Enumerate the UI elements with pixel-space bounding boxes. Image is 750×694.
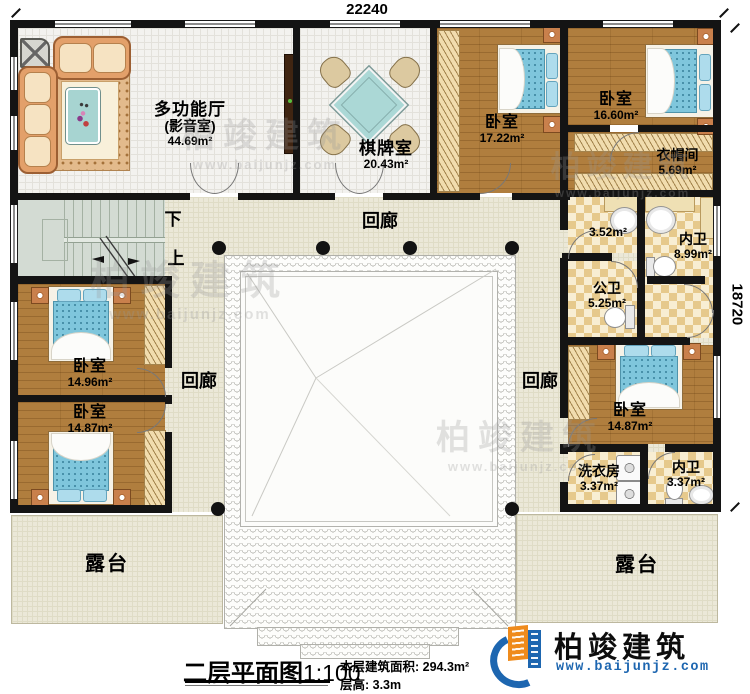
wall: [10, 276, 172, 284]
window: [10, 302, 18, 360]
coffee-table: [66, 88, 100, 144]
nightstand: [543, 26, 561, 43]
bed-pillow: [699, 54, 711, 81]
room-area: 5.69m²: [630, 164, 725, 177]
sofa-left: [18, 66, 58, 174]
floor-area-note: 本层建筑面积: 294.3m²: [340, 656, 469, 675]
bed: [615, 342, 683, 410]
wardrobe: [438, 30, 460, 192]
room-name: 洗衣房: [564, 464, 634, 480]
window: [185, 20, 255, 28]
stair-landing: [42, 219, 68, 261]
room-label-laundry: 洗衣房 3.37m²: [564, 464, 634, 493]
nightstand: [597, 343, 615, 360]
bed-pillow: [83, 489, 107, 502]
window: [10, 205, 18, 263]
logo-building-windows: [531, 633, 538, 665]
wall: [165, 276, 172, 368]
wall: [560, 200, 568, 230]
column: [316, 241, 330, 255]
wall: [10, 20, 18, 513]
bed-pillow: [546, 53, 558, 79]
room-name: 卧室: [452, 114, 552, 132]
room-area: 3.37m²: [564, 480, 634, 493]
wall: [15, 193, 190, 200]
dimension-tick: [11, 8, 21, 18]
window: [10, 57, 18, 90]
toilet-bowl: [604, 307, 626, 328]
column: [403, 241, 417, 255]
window: [440, 20, 530, 28]
stairs-up-label: 上: [165, 249, 187, 268]
bed-sheet: [499, 48, 525, 110]
sofa-cushion: [24, 136, 51, 167]
window: [713, 356, 721, 418]
floor-plan: 多功能厅 (影音室) 44.69m² 棋牌室 20.43m² 卧室 17.22m…: [0, 0, 750, 694]
bed: [497, 44, 561, 114]
stair-rail: [64, 237, 165, 243]
wall: [165, 432, 172, 513]
room-name: 内卫: [664, 232, 722, 248]
bed-pillow: [651, 345, 676, 357]
courtyard-opening: [240, 271, 498, 527]
room-area: 44.69m²: [140, 135, 240, 148]
wall: [665, 444, 721, 452]
wall: [568, 125, 610, 132]
bed-pillow: [57, 489, 81, 502]
corridor-label-right: 回廊: [514, 371, 566, 391]
window: [603, 20, 673, 28]
wardrobe: [144, 285, 166, 365]
room-label-bedroom-right: 卧室 14.87m²: [580, 402, 680, 433]
sofa-cushion: [24, 104, 51, 135]
nightstand: [31, 489, 49, 506]
tv-indicator: [288, 99, 292, 103]
bed-pillow: [699, 84, 711, 111]
column: [212, 241, 226, 255]
wall: [293, 20, 300, 200]
company-logo: 柏竣建筑 www.baijunjz.com: [488, 618, 738, 684]
room-name: 卧室: [40, 358, 140, 376]
room-name: 棋牌室: [336, 139, 436, 158]
wall: [647, 276, 705, 284]
room-area: 5.25m²: [577, 297, 637, 310]
wall: [637, 197, 645, 338]
title-underline: [185, 680, 330, 683]
room-subname: (影音室): [140, 119, 240, 135]
bed: [48, 286, 114, 362]
dimension-tick: [719, 8, 729, 18]
column: [505, 241, 519, 255]
room-area: 20.43m²: [336, 158, 436, 171]
stairs-down-label: 下: [162, 210, 184, 229]
bed-pillow: [546, 81, 558, 107]
dimension-right: 18720: [728, 272, 745, 336]
nightstand: [31, 287, 49, 304]
wall: [430, 20, 437, 200]
wall: [713, 20, 721, 512]
corridor-label-top: 回廊: [352, 211, 408, 231]
nightstand: [683, 343, 701, 360]
column: [505, 502, 519, 516]
nightstand: [113, 489, 131, 506]
room-area: 14.87m²: [40, 422, 140, 435]
room-label-chess: 棋牌室 20.43m²: [336, 139, 436, 171]
room-area: 8.99m²: [664, 248, 722, 261]
staircase: [18, 200, 165, 278]
room-label-washbasin: 3.52m²: [580, 226, 636, 239]
window: [330, 20, 400, 28]
room-label-multi-hall: 多功能厅 (影音室) 44.69m²: [140, 100, 240, 148]
room-label-bedroom17: 卧室 17.22m²: [452, 114, 552, 145]
sofa-cushion: [93, 43, 126, 73]
courtyard-inner-line: [245, 276, 493, 522]
floor-height-note: 层高: 3.3m: [340, 674, 401, 693]
room-label-bedroom16: 卧室 16.60m²: [566, 91, 666, 122]
room-name: 多功能厅: [140, 100, 240, 119]
nightstand: [113, 287, 131, 304]
wall: [560, 337, 690, 345]
room-label-bedroom-left-bottom: 卧室 14.87m²: [40, 404, 140, 435]
room-label-public-bath: 公卫 5.25m²: [577, 281, 637, 310]
speaker-box: [20, 38, 50, 68]
room-label-cloakroom: 衣帽间 5.69m²: [630, 148, 725, 177]
room-area: 14.96m²: [40, 376, 140, 389]
logo-building-windows: [512, 629, 524, 656]
bed-pillow: [624, 345, 649, 357]
wardrobe: [144, 430, 166, 506]
bed-pillow: [83, 289, 107, 302]
column: [211, 502, 225, 516]
sofa-top: [53, 36, 131, 80]
room-area: 3.37m²: [658, 476, 714, 489]
terrace-label-right: 露台: [602, 554, 672, 576]
room-label-bedroom-left-top: 卧室 14.96m²: [40, 358, 140, 389]
corridor-label-left: 回廊: [171, 371, 227, 391]
room-label-inner-bath-top: 内卫 8.99m²: [664, 232, 722, 261]
window: [10, 116, 18, 150]
window: [10, 441, 18, 499]
bed-pillow: [57, 289, 81, 302]
room-name: 内卫: [658, 460, 714, 476]
room-area: 3.52m²: [580, 226, 636, 239]
dimension-tick: [730, 23, 740, 33]
logo-icon: [488, 620, 548, 680]
wall: [10, 505, 172, 513]
logo-building-blue: [528, 630, 541, 668]
wall: [568, 190, 721, 197]
room-name: 卧室: [40, 404, 140, 422]
wall: [638, 125, 721, 132]
room-area: 17.22m²: [452, 132, 552, 145]
window: [55, 20, 131, 28]
dimension-tick: [730, 502, 740, 512]
wall: [165, 396, 172, 404]
room-label-inner-bath-bottom: 内卫 3.37m²: [658, 460, 714, 489]
dimension-top: 22240: [327, 2, 407, 19]
room-name: 衣帽间: [630, 148, 725, 164]
room-name: 卧室: [566, 91, 666, 109]
bed: [48, 431, 114, 505]
logo-building-orange: [508, 625, 528, 661]
logo-url: www.baijunjz.com: [556, 660, 710, 675]
room-area: 14.87m²: [580, 420, 680, 433]
sofa-cushion: [24, 72, 51, 103]
wall: [238, 193, 335, 200]
room-name: 公卫: [577, 281, 637, 297]
terrace-label-left: 露台: [72, 553, 142, 575]
room-name: 卧室: [580, 402, 680, 420]
wall: [640, 452, 648, 512]
sofa-cushion: [59, 43, 92, 73]
room-area: 16.60m²: [566, 109, 666, 122]
title-underline-thin: [185, 685, 328, 686]
washbasin: [646, 206, 676, 234]
